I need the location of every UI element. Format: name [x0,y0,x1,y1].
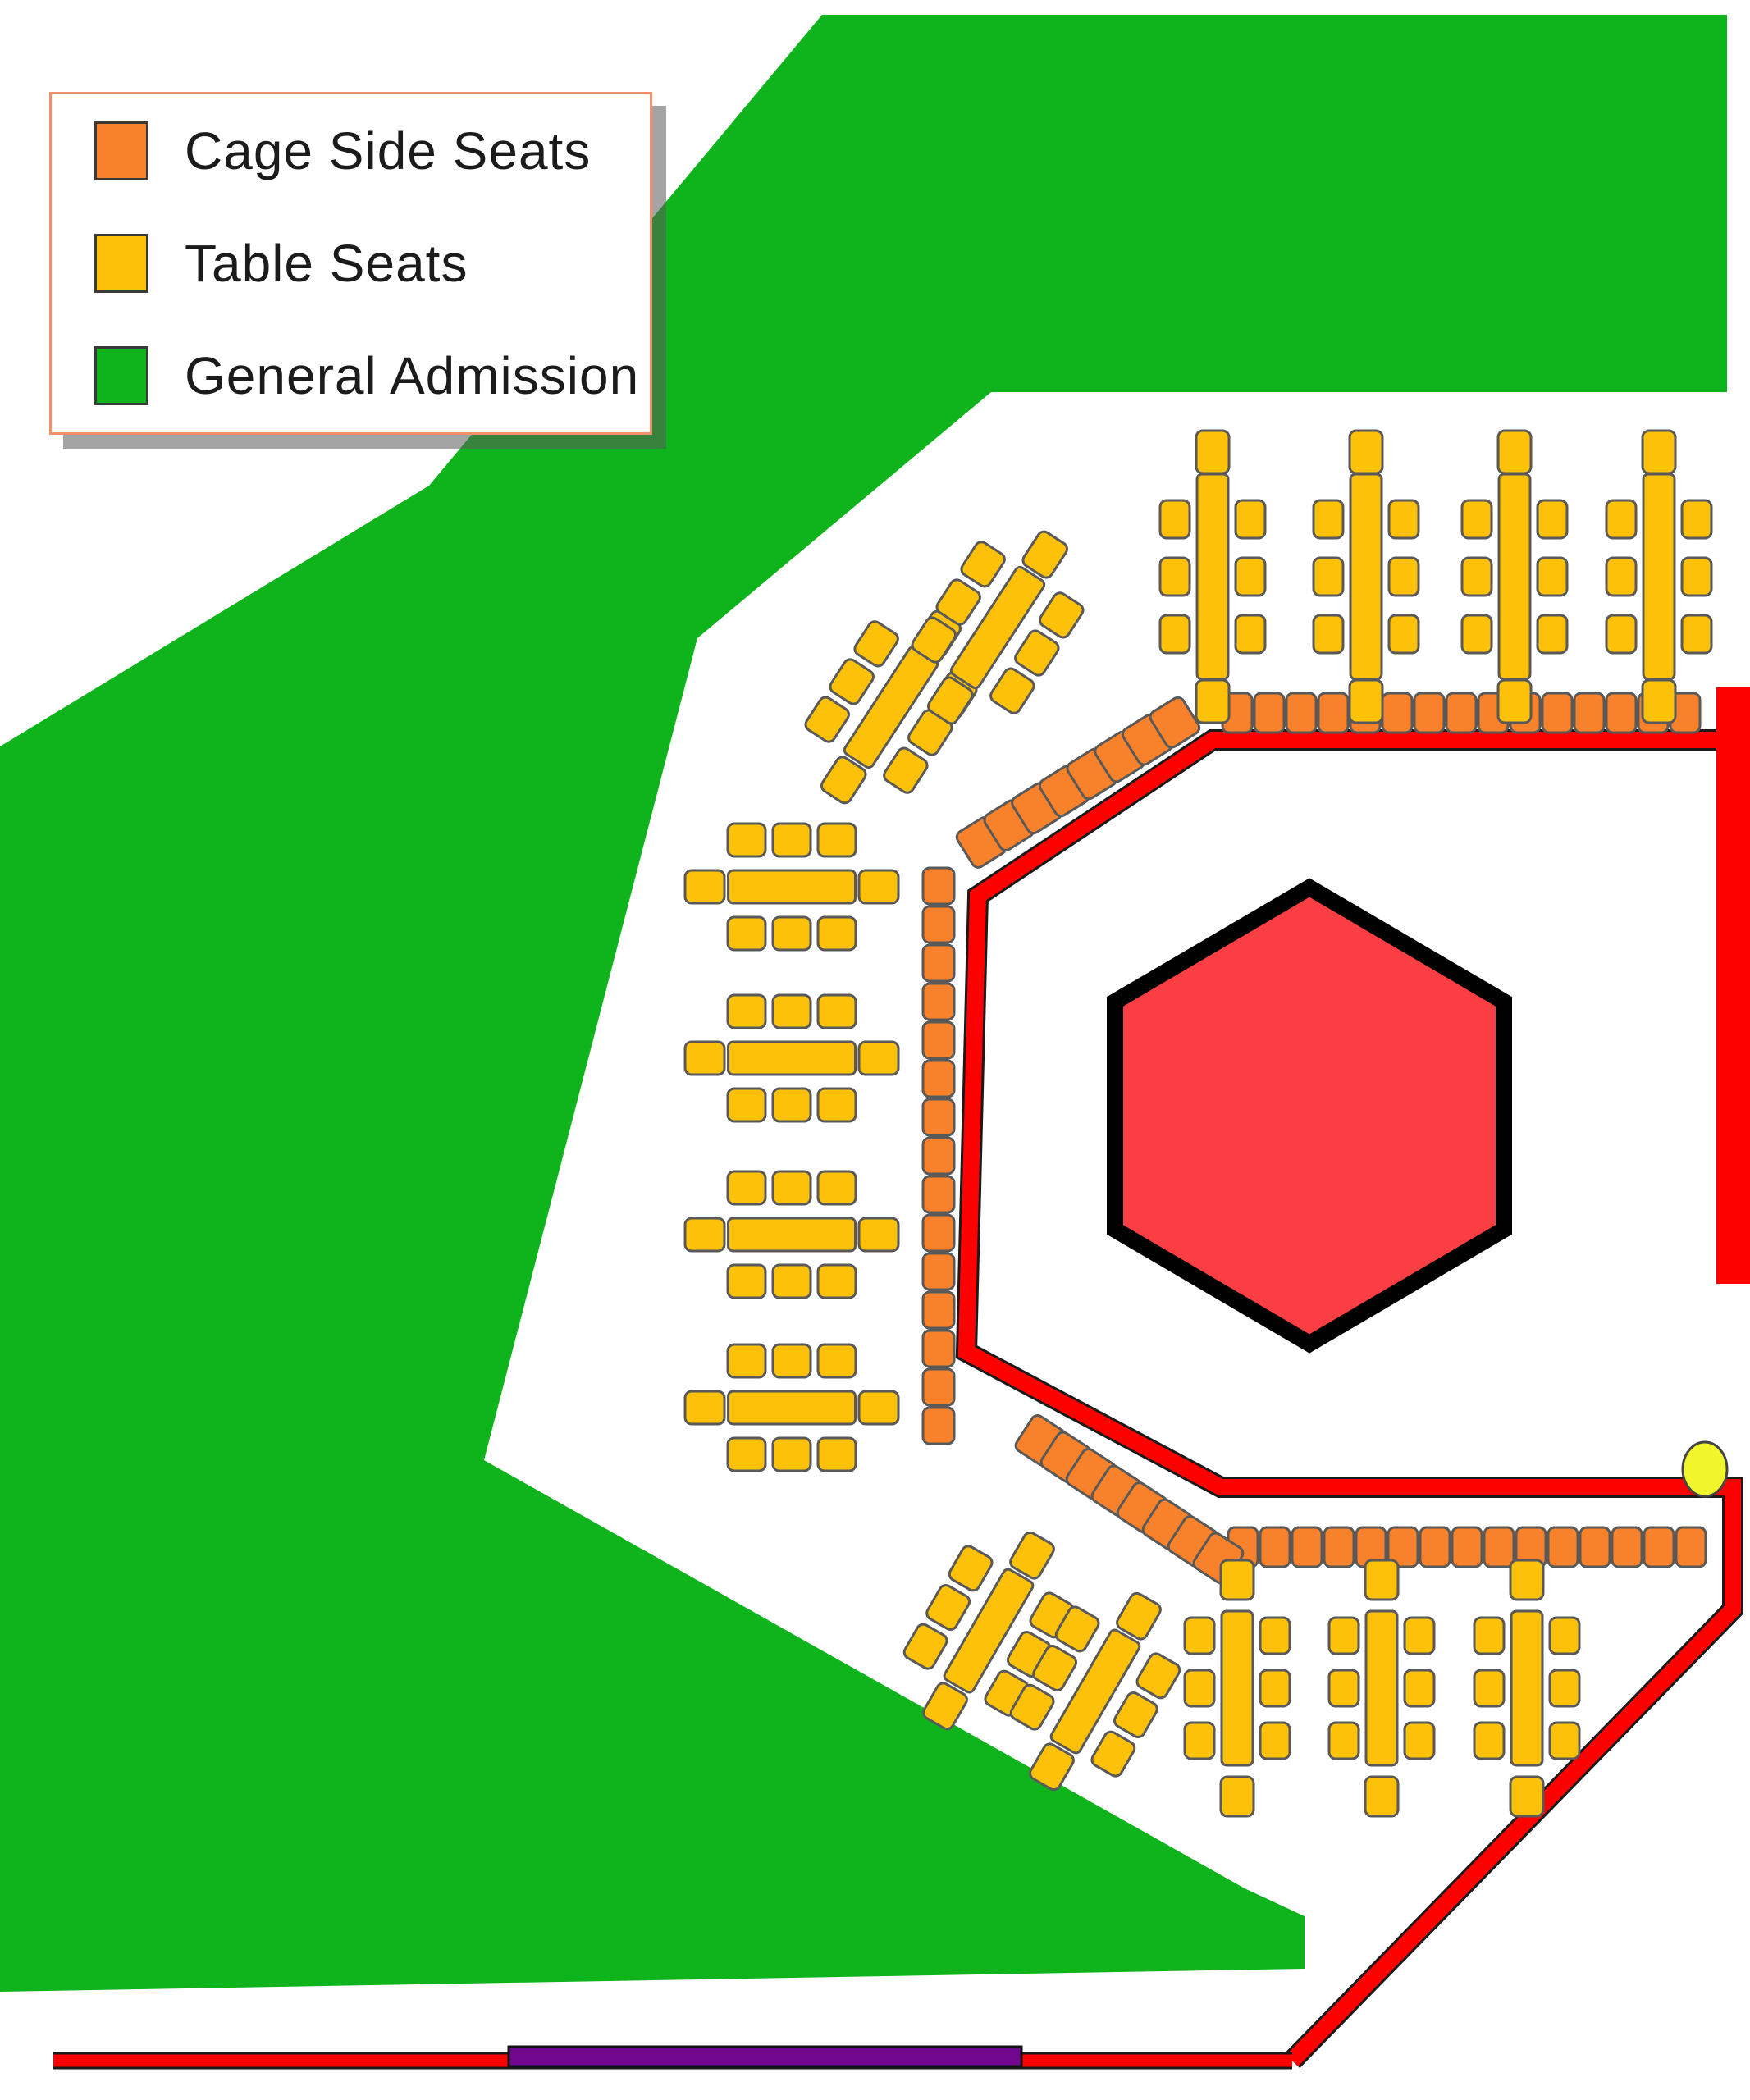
cage-side-seat[interactable] [923,1331,954,1367]
table-seat[interactable] [728,1265,765,1298]
table-seats-swatch-icon [94,234,148,293]
table-seat[interactable] [1160,500,1190,538]
table-seat[interactable] [1185,1618,1214,1654]
table-seat[interactable] [1314,615,1343,653]
table-cluster [1606,431,1711,723]
cage-side-seat[interactable] [1452,1527,1482,1567]
table-seat[interactable] [1405,1723,1434,1759]
table-cluster [1314,431,1419,723]
table-seat[interactable] [1260,1618,1290,1654]
table-seat[interactable] [818,1171,856,1204]
purple-strip [509,2047,1021,2066]
table-seat[interactable] [1606,615,1636,653]
table-seat[interactable] [818,1344,856,1377]
table-seat[interactable] [1550,1618,1579,1654]
cage-side-seat[interactable] [923,868,954,904]
table-seat[interactable] [1643,680,1675,723]
table-seat[interactable] [685,1218,724,1251]
legend-label: Table Seats [185,233,468,294]
cage-side-seat[interactable] [923,1408,954,1444]
table-seat[interactable] [859,1391,898,1424]
table-seat[interactable] [728,1344,765,1377]
table-seat[interactable] [773,1089,811,1121]
table-seat[interactable] [1037,591,1085,640]
table-seat[interactable] [1160,615,1190,653]
table-seat[interactable] [859,1218,898,1251]
cage-side-seat[interactable] [923,1369,954,1405]
table-seat[interactable] [859,1042,898,1075]
table-seat[interactable] [1474,1618,1504,1654]
table-seat[interactable] [1682,615,1711,653]
table-seat[interactable] [859,870,898,903]
table-seat[interactable] [1329,1618,1359,1654]
table-seat[interactable] [773,1171,811,1204]
table-seat[interactable] [989,666,1037,715]
table-seat[interactable] [828,657,876,706]
table [1643,474,1675,679]
table-seat[interactable] [818,1089,856,1121]
table-seat[interactable] [947,1544,994,1593]
table-cluster [1462,431,1567,723]
cage-side-swatch-icon [94,121,148,180]
cage-side-seat[interactable] [1260,1527,1290,1567]
table-seat[interactable] [1013,628,1062,678]
table-seat[interactable] [773,1265,811,1298]
table-cluster [780,583,1003,831]
table-seat[interactable] [1405,1618,1434,1654]
table-seat[interactable] [1365,1560,1398,1600]
table-seat[interactable] [773,1438,811,1471]
table-seat[interactable] [1606,500,1636,538]
table-seat[interactable] [1365,1777,1398,1816]
table-seat[interactable] [1260,1670,1290,1706]
table [1499,474,1530,679]
table-seat[interactable] [1474,1723,1504,1759]
table-seat[interactable] [1260,1723,1290,1759]
table-cluster [1185,1560,1290,1816]
table [1511,1611,1542,1765]
table-seat[interactable] [1538,500,1567,538]
table-seat[interactable] [773,1344,811,1377]
table-seat[interactable] [1462,558,1492,596]
table-cluster [1329,1560,1434,1816]
cage-side-seat[interactable] [1420,1527,1450,1567]
table-seat[interactable] [1350,680,1382,723]
table-seat[interactable] [1606,558,1636,596]
cage-row-top [1222,693,1700,733]
table-seat[interactable] [728,995,765,1028]
table-seat[interactable] [1550,1670,1579,1706]
table-seat[interactable] [773,995,811,1028]
general-admission-swatch-icon [94,346,148,405]
cage-side-seat[interactable] [1580,1527,1610,1567]
cage-side-seat[interactable] [1382,693,1412,733]
table [943,1568,1035,1694]
table-seat[interactable] [1405,1670,1434,1706]
table [729,1042,856,1075]
table-seat[interactable] [1090,1729,1137,1778]
table-seat[interactable] [1314,500,1343,538]
legend-label: Cage Side Seats [185,121,591,181]
cage-side-seat[interactable] [923,1099,954,1135]
legend-box: Cage Side Seats Table Seats General Admi… [49,92,652,435]
table [1197,474,1228,679]
table-seat[interactable] [1221,1777,1254,1816]
cage-side-seat[interactable] [1606,693,1636,733]
table-seat[interactable] [818,1438,856,1471]
table-seat[interactable] [852,619,901,669]
table-seat[interactable] [1462,615,1492,653]
cage-side-seat[interactable] [1484,1527,1514,1567]
table-seat[interactable] [1510,1777,1543,1816]
table [1049,1628,1141,1755]
table-seat[interactable] [728,1089,765,1121]
table-seat[interactable] [959,540,1008,589]
table-seat[interactable] [925,1583,972,1632]
table-seat[interactable] [1236,500,1265,538]
cage-side-seat[interactable] [1254,693,1284,733]
table-cluster [685,824,898,950]
table [1366,1611,1397,1765]
table-seat[interactable] [773,917,811,950]
table-seat[interactable] [882,746,930,795]
cage-side-seat[interactable] [1286,693,1316,733]
cage-col-left [923,868,954,1444]
cage-side-seat[interactable] [1548,1527,1578,1567]
table-seat[interactable] [1160,558,1190,596]
table-seat[interactable] [1389,500,1419,538]
table-cluster [685,995,898,1121]
cage-side-seat[interactable] [1644,1527,1674,1567]
table-seat[interactable] [1314,558,1343,596]
table [1222,1611,1253,1765]
cage-side-seat[interactable] [1292,1527,1322,1567]
table-seat[interactable] [1682,558,1711,596]
legend-item-general-admission: General Admission [94,345,650,406]
cage-side-seat[interactable] [1446,693,1476,733]
seat-map-page: Cage Side Seats Table Seats General Admi… [0,0,1750,2100]
table-seat[interactable] [685,1042,724,1075]
cage-side-seat[interactable] [923,1253,954,1290]
table-seat[interactable] [1462,500,1492,538]
table-seat[interactable] [728,917,765,950]
table [729,870,856,903]
table-seat[interactable] [728,1171,765,1204]
table-seat[interactable] [818,1265,856,1298]
cage-side-seat[interactable] [1612,1527,1642,1567]
table-seat[interactable] [685,870,724,903]
table-seat[interactable] [818,917,856,950]
table-seat[interactable] [1350,431,1382,473]
table-seat[interactable] [728,824,765,856]
table-seat[interactable] [685,1391,724,1424]
table-seat[interactable] [728,1438,765,1471]
table-seat[interactable] [1329,1670,1359,1706]
table-seat[interactable] [1538,615,1567,653]
table-seat[interactable] [818,995,856,1028]
cage-side-seat[interactable] [923,1022,954,1058]
table-seat[interactable] [1221,1560,1254,1600]
table [729,1391,856,1424]
table-seat[interactable] [1236,615,1265,653]
cage-side-seat[interactable] [1324,1527,1354,1567]
cage-side-seat[interactable] [923,1176,954,1212]
table-seat[interactable] [1185,1670,1214,1706]
cage-side-seat[interactable] [923,1215,954,1251]
table-seat[interactable] [1236,558,1265,596]
legend-label: General Admission [185,345,639,406]
cage-side-seat[interactable] [1574,693,1604,733]
table-seat[interactable] [1389,558,1419,596]
table-seat[interactable] [773,824,811,856]
table-cluster [887,504,1109,751]
table [1350,474,1382,679]
table-cluster [1160,431,1265,723]
table-seat[interactable] [902,1622,949,1671]
cage-side-seat[interactable] [923,984,954,1020]
cage-side-seat[interactable] [923,945,954,981]
table-seat[interactable] [1113,1691,1160,1740]
table-seat[interactable] [1329,1723,1359,1759]
table-seat[interactable] [1389,615,1419,653]
cage-side-seat[interactable] [1318,693,1348,733]
cage-side-seat[interactable] [923,1061,954,1097]
red-wall-bar [1716,687,1750,1284]
table [729,1218,856,1251]
table-seat[interactable] [1643,431,1675,473]
legend-item-cage-side: Cage Side Seats [94,121,650,181]
table-cluster [685,1171,898,1298]
cage-row-bottom [1228,1527,1706,1567]
table-seat[interactable] [1196,431,1229,473]
table-seat[interactable] [803,695,852,744]
table-seat[interactable] [1510,1560,1543,1600]
cage-side-seat[interactable] [1542,693,1572,733]
cage-side-seat[interactable] [923,906,954,943]
table-seat[interactable] [1498,680,1531,723]
table-seat[interactable] [1550,1723,1579,1759]
table-seat[interactable] [1538,558,1567,596]
table-seat[interactable] [1135,1651,1182,1701]
table-seat[interactable] [1498,431,1531,473]
cage-side-seat[interactable] [1676,1527,1706,1567]
legend-item-table-seats: Table Seats [94,233,650,294]
fight-cage [1115,888,1504,1344]
table-seat[interactable] [1196,680,1229,723]
table-seat[interactable] [1185,1723,1214,1759]
entrance-marker-circle [1683,1442,1727,1496]
table-seat[interactable] [818,824,856,856]
cage-side-seat[interactable] [923,1292,954,1328]
table-cluster [685,1344,898,1471]
cage-side-seat[interactable] [1414,693,1444,733]
cage-side-seat[interactable] [923,1138,954,1174]
table-seat[interactable] [1682,500,1711,538]
table-seat[interactable] [1474,1670,1504,1706]
